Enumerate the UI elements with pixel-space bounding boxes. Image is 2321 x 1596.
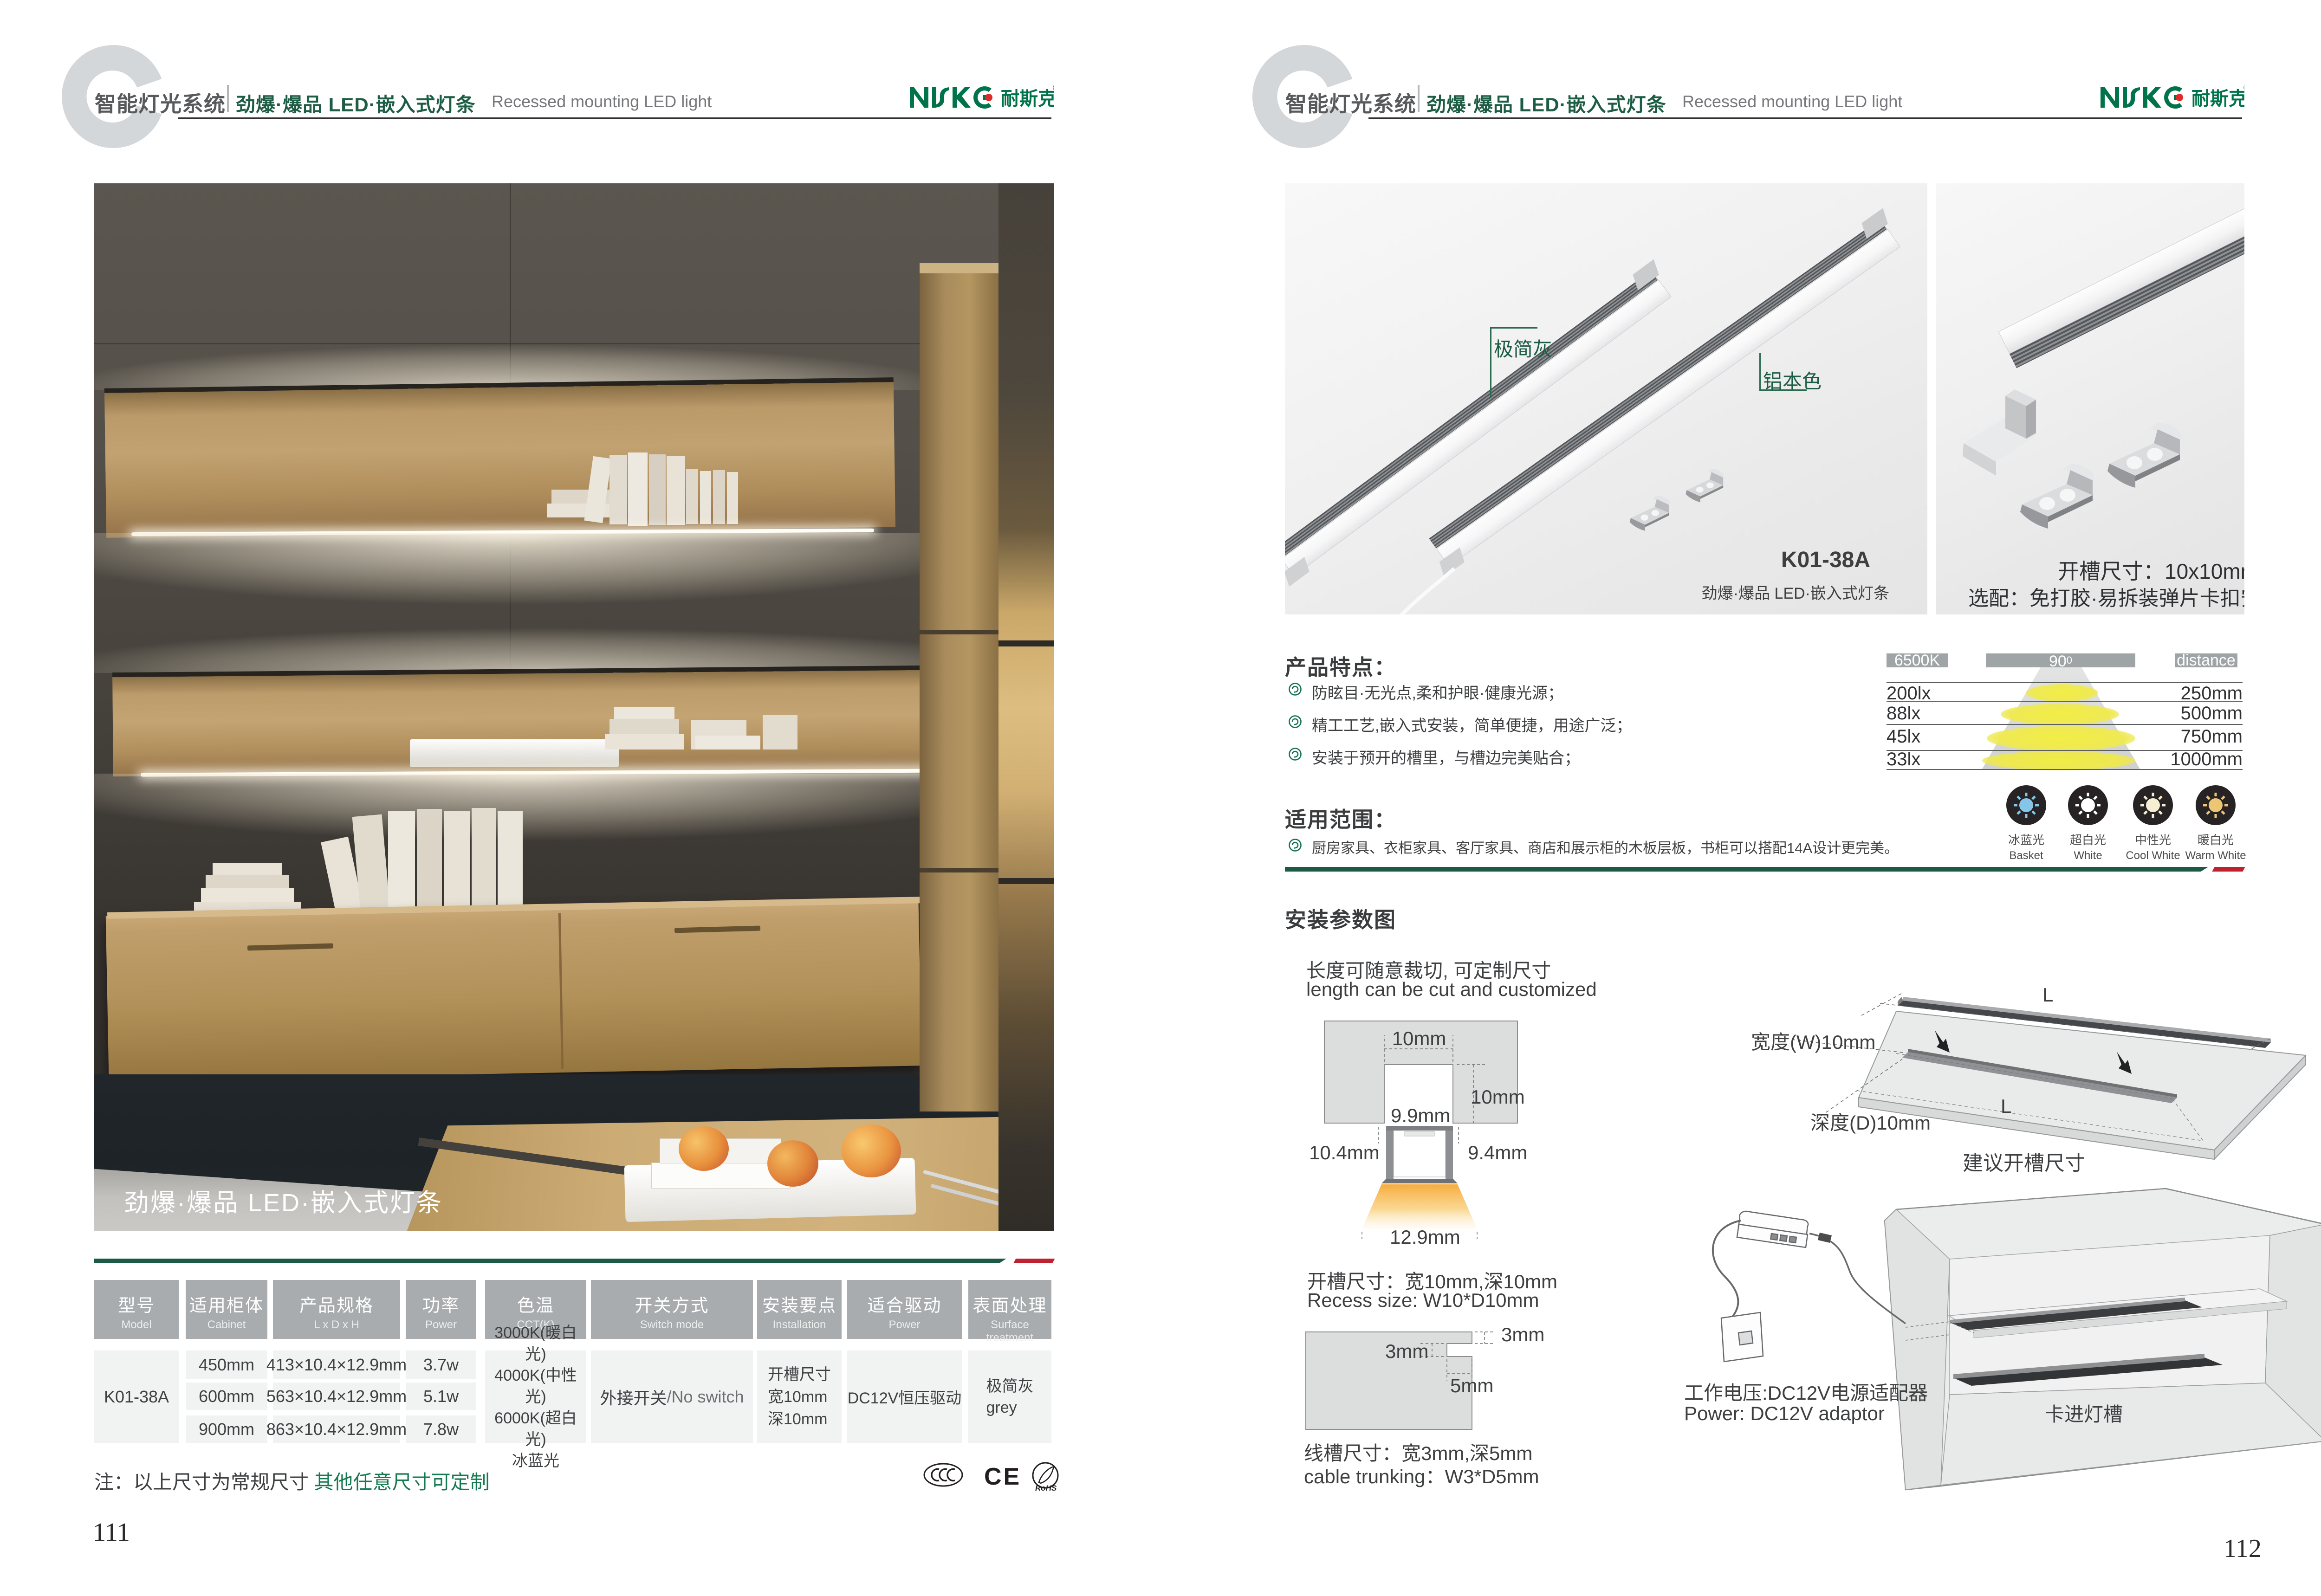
- svg-text:耐斯克: 耐斯克: [1001, 89, 1054, 109]
- svg-text:RoHS: RoHS: [1035, 1484, 1057, 1493]
- svg-text:®: ®: [1053, 84, 1054, 93]
- svg-text:耐斯克: 耐斯克: [2191, 89, 2244, 109]
- svg-text:®: ®: [2243, 84, 2244, 93]
